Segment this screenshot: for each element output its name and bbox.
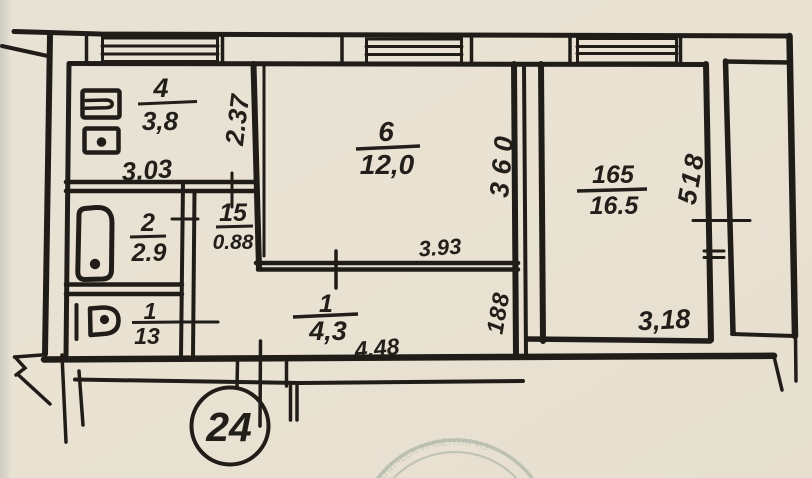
svg-text:1: 1 xyxy=(144,298,157,324)
svg-text:4: 4 xyxy=(152,73,168,103)
svg-text:16.5: 16.5 xyxy=(590,192,640,220)
svg-text:2.37: 2.37 xyxy=(219,91,255,147)
svg-text:3,18: 3,18 xyxy=(637,304,691,337)
svg-text:12,0: 12,0 xyxy=(360,149,415,180)
svg-text:360: 360 xyxy=(484,127,520,198)
svg-text:0.88: 0.88 xyxy=(213,231,254,254)
svg-text:2: 2 xyxy=(140,209,155,237)
svg-text:4.48: 4.48 xyxy=(353,333,401,363)
svg-text:2.9: 2.9 xyxy=(131,239,167,267)
svg-text:3,8: 3,8 xyxy=(142,106,179,136)
svg-text:13: 13 xyxy=(134,323,160,349)
svg-text:4,3: 4,3 xyxy=(308,316,347,346)
svg-text:3.03: 3.03 xyxy=(121,153,174,186)
svg-text:3.93: 3.93 xyxy=(418,234,462,262)
svg-text:15: 15 xyxy=(219,199,248,227)
svg-text:165: 165 xyxy=(592,161,635,189)
svg-text:24: 24 xyxy=(205,404,252,450)
svg-text:6: 6 xyxy=(378,116,394,147)
